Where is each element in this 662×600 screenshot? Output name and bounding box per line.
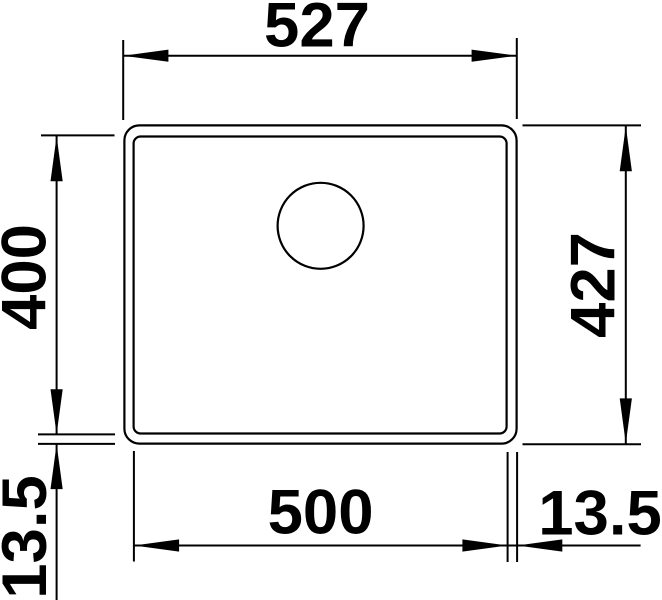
svg-text:500: 500 <box>268 478 374 548</box>
svg-text:13.5: 13.5 <box>0 475 60 599</box>
svg-text:527: 527 <box>264 0 370 61</box>
svg-text:13.5: 13.5 <box>538 479 662 549</box>
svg-text:427: 427 <box>559 232 629 338</box>
svg-text:400: 400 <box>0 224 59 330</box>
